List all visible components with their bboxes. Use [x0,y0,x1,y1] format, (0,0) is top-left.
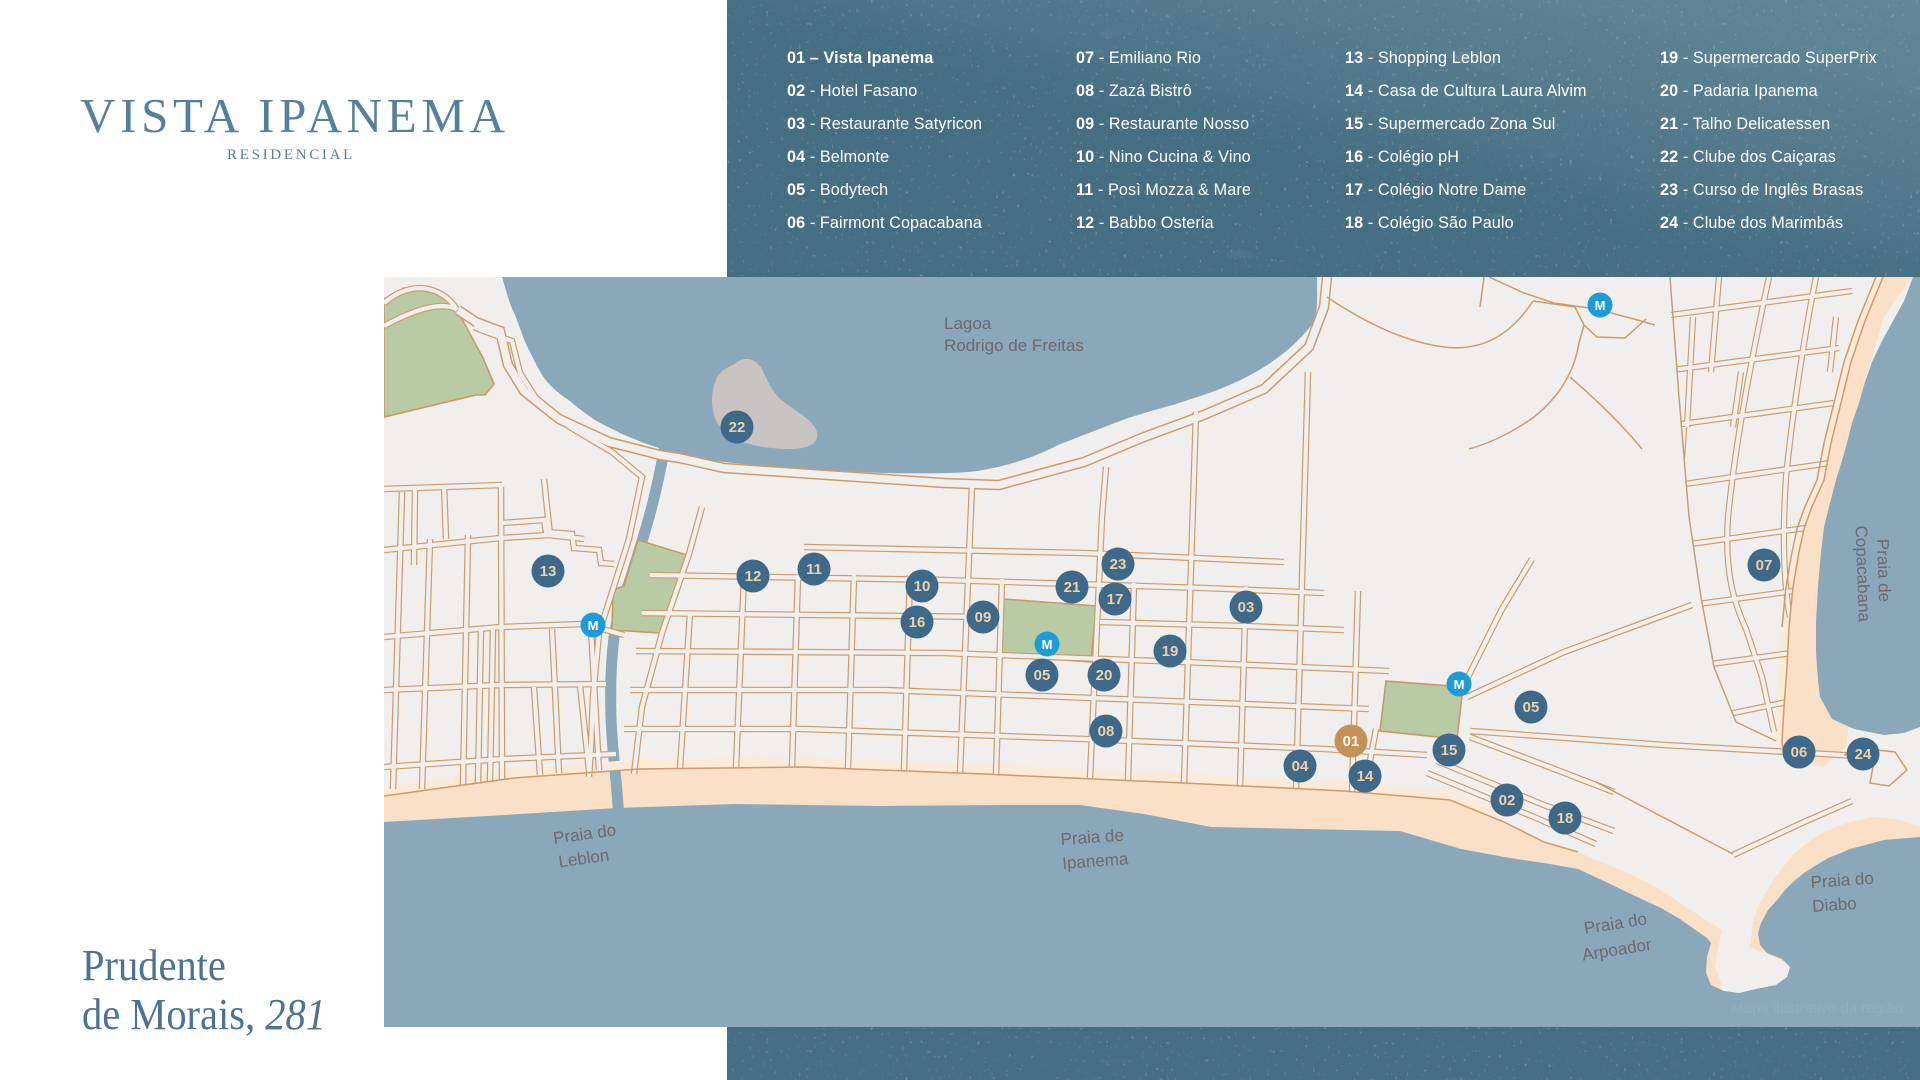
svg-text:Praia de: Praia de [1873,538,1894,602]
svg-text:Lagoa: Lagoa [944,314,992,333]
svg-text:20: 20 [1096,667,1113,684]
svg-text:05: 05 [1034,667,1051,684]
svg-text:10: 10 [914,578,931,595]
svg-text:M: M [1595,298,1606,313]
svg-text:19: 19 [1162,643,1179,660]
svg-text:03: 03 [1238,599,1255,616]
svg-text:Diabo: Diabo [1812,894,1858,916]
svg-text:M: M [1042,637,1053,652]
svg-text:01: 01 [1343,733,1360,750]
svg-text:M: M [1454,677,1465,692]
svg-text:22: 22 [729,419,746,436]
svg-text:04: 04 [1292,758,1309,775]
svg-text:18: 18 [1557,810,1574,827]
svg-text:02: 02 [1499,792,1516,809]
svg-text:21: 21 [1064,579,1081,596]
svg-text:12: 12 [745,568,762,585]
svg-text:Rodrigo de Freitas: Rodrigo de Freitas [944,336,1084,355]
svg-text:15: 15 [1441,742,1458,759]
svg-text:09: 09 [975,609,992,626]
svg-text:16: 16 [909,614,926,631]
svg-text:06: 06 [1791,744,1808,761]
svg-text:07: 07 [1756,557,1773,574]
svg-text:05: 05 [1523,699,1540,716]
svg-text:Copacabana: Copacabana [1852,525,1874,623]
svg-text:24: 24 [1855,746,1872,763]
svg-text:08: 08 [1098,723,1115,740]
svg-text:Mapa ilustrativo da região: Mapa ilustrativo da região [1731,1000,1903,1017]
svg-text:14: 14 [1357,768,1374,785]
svg-text:13: 13 [540,563,557,580]
svg-text:M: M [588,618,599,633]
svg-text:23: 23 [1110,556,1127,573]
svg-text:17: 17 [1107,591,1124,608]
svg-text:11: 11 [806,561,822,578]
